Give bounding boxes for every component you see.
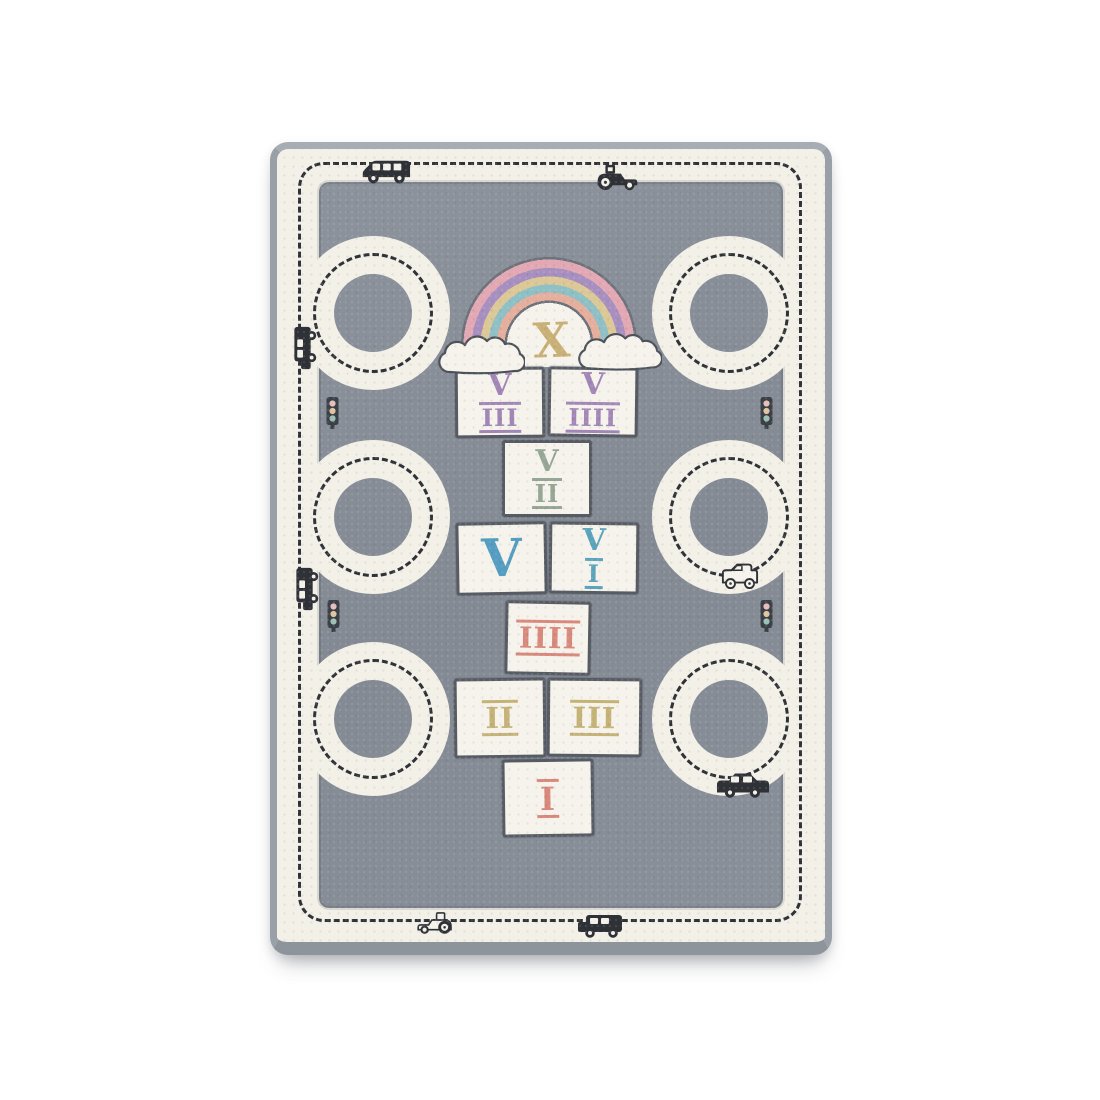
numeral-top: V [535,448,558,477]
hopscotch-square-seven: V II [502,440,592,517]
hopscotch-square-nine: V IIII [548,366,639,437]
truck-icon [280,334,326,362]
numeral-top: II [482,700,518,736]
traffic-light-icon [325,396,340,430]
truck-icon [282,575,328,603]
hopscotch-square-five: V [455,521,547,596]
jeep-icon [721,558,759,592]
numeral-top: V [582,527,606,556]
hopscotch-square-three: III [547,678,643,758]
cloud-icon [577,322,662,377]
tractor-icon [592,162,642,191]
hopscotch-square-six: V I [549,522,640,595]
car-icon [715,767,769,798]
hopscotch-square-four: IIII [504,600,591,675]
numeral-bottom: II [532,478,562,509]
rug-border-road: X V III V IIII [277,149,825,942]
hopscotch-square-one: I [501,758,594,837]
cloud-icon [437,325,525,380]
numeral-bottom: III [479,402,522,433]
numeral-bottom: IIII [565,401,620,433]
numeral-top: III [569,699,619,735]
tractor-icon [415,907,455,938]
traffic-light-icon [759,599,774,633]
hopscotch-square-two: II [454,678,547,759]
hopscotch-play-rug: X V III V IIII [270,142,832,955]
product-photo: X V III V IIII [0,0,1100,1100]
numeral-bottom: I [585,558,604,589]
numeral-top: I [537,778,560,817]
traffic-light-icon [759,396,774,430]
bus-icon [357,152,411,185]
truck-icon [575,910,625,938]
traffic-light-icon [326,599,341,633]
numeral-top: V [481,532,522,585]
numeral-top: IIII [516,619,581,656]
